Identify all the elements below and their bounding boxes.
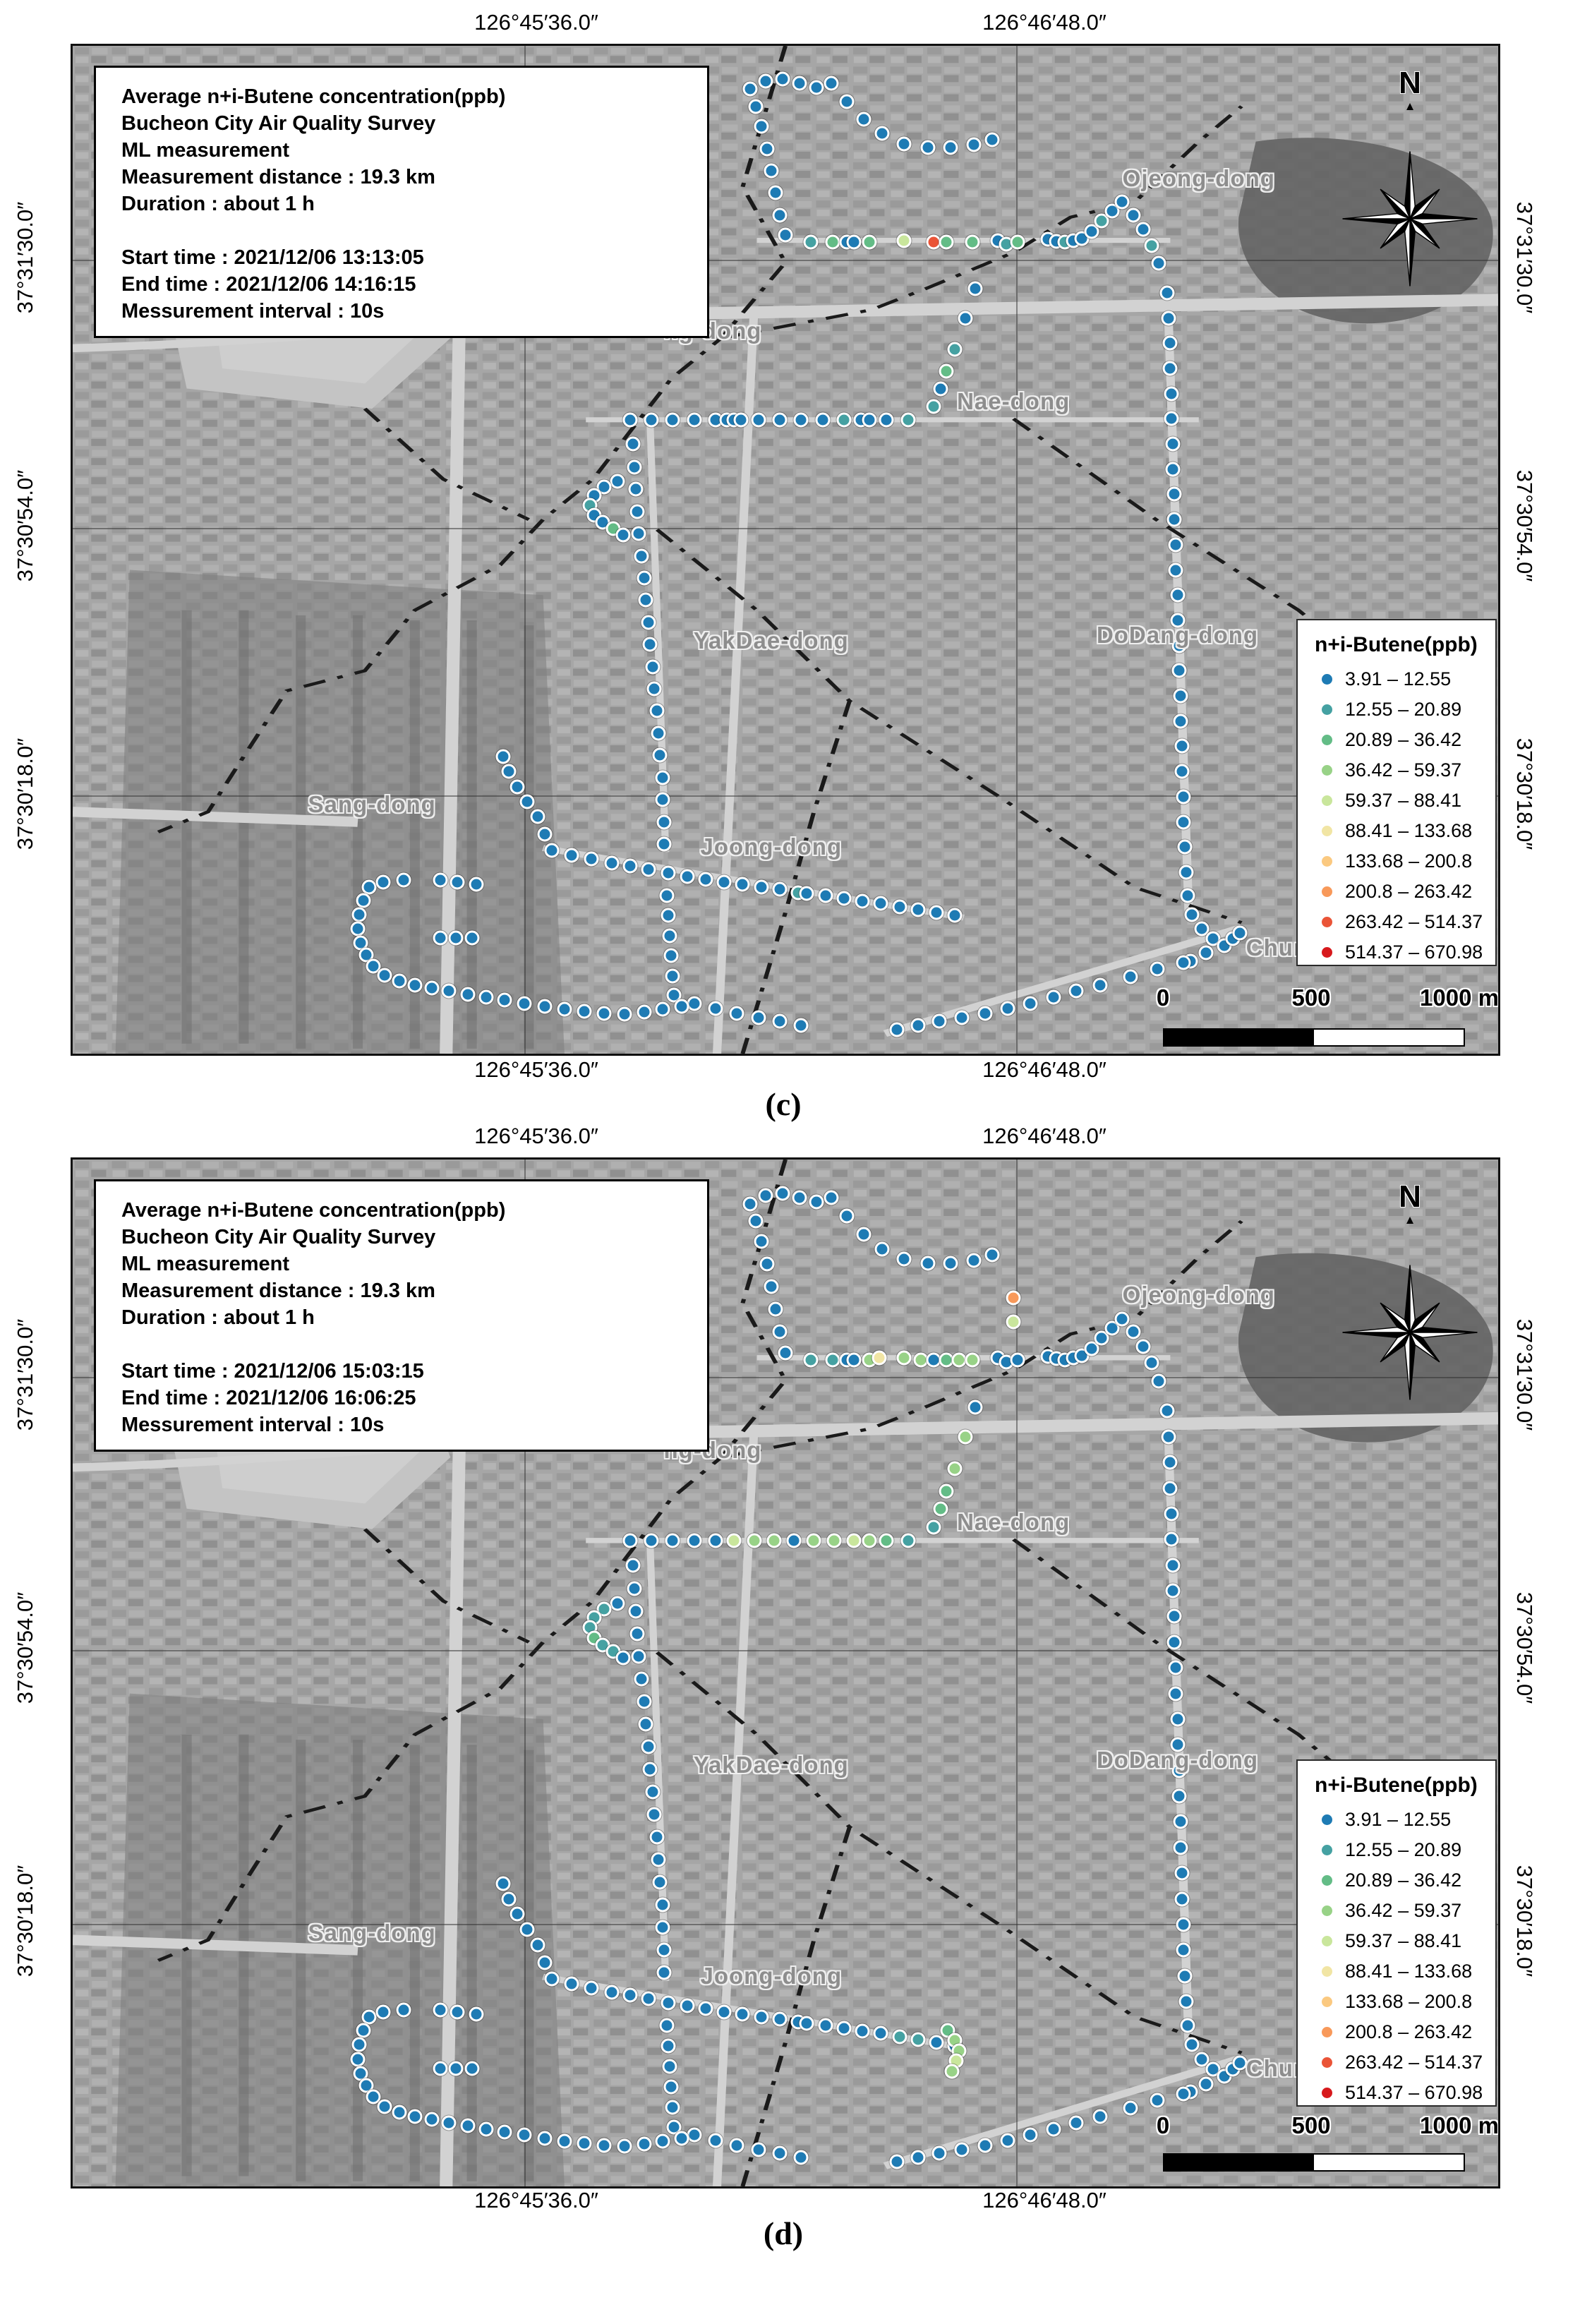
measurement-point (1233, 2056, 1248, 2071)
measurement-point (945, 2064, 960, 2079)
lat-label-left-1-c: 37°31′30.0″ (13, 202, 38, 313)
measurement-point (392, 2105, 406, 2120)
legend-row: 59.37 – 88.41 (1315, 1926, 1495, 1956)
measurement-point (464, 2061, 479, 2076)
measurement-point (1173, 714, 1188, 728)
legend-class-label: 88.41 – 133.68 (1345, 1961, 1472, 1982)
measurement-point (698, 2001, 713, 2016)
info-line: Measurement distance : 19.3 km (121, 164, 700, 191)
measurement-point (1046, 990, 1061, 1005)
info-line: Bucheon City Air Quality Survey (121, 110, 700, 137)
measurement-point (464, 930, 479, 945)
measurement-point (657, 1943, 672, 1958)
measurement-point (351, 2052, 366, 2066)
lon-label-bottom-right-d: 126°46′48.0″ (982, 2188, 1106, 2213)
legend-row: 200.8 – 263.42 (1315, 877, 1495, 907)
measurement-point (1198, 946, 1213, 961)
lat-label-left-3-d: 37°30′18.0″ (13, 1865, 38, 1977)
legend-row: 263.42 – 514.37 (1315, 2047, 1495, 2078)
measurement-point (450, 2004, 465, 2019)
measurement-point (610, 1596, 625, 1610)
measurement-point (362, 2009, 377, 2024)
measurement-point (927, 1519, 941, 1534)
measurement-point (661, 908, 676, 923)
district-label: Sang-dong (308, 791, 436, 818)
measurement-point (625, 1558, 640, 1572)
measurement-point (818, 888, 833, 903)
measurement-point (425, 2112, 440, 2127)
legend-class-label: 514.37 – 670.98 (1345, 2082, 1483, 2104)
measurement-point (644, 412, 659, 427)
measurement-point (1145, 238, 1159, 253)
measurement-point (855, 2024, 870, 2039)
info-line: ML measurement (121, 137, 700, 164)
gridline-vertical (1016, 1160, 1018, 2186)
measurement-point (1176, 956, 1190, 970)
measurement-point (544, 1972, 559, 1987)
measurement-point (1166, 1584, 1181, 1598)
scale-tick-0: 0 (1157, 985, 1169, 1011)
measurement-point (1178, 865, 1193, 879)
measurement-point (680, 1998, 694, 2013)
gridline-vertical (1016, 46, 1018, 1054)
measurement-point (622, 1533, 637, 1548)
legend-row: 263.42 – 514.37 (1315, 907, 1495, 937)
measurement-point (665, 1533, 680, 1548)
measurement-point (896, 136, 911, 151)
measurement-point (628, 482, 643, 497)
measurement-point (984, 1248, 999, 1263)
north-arrow: N ▲ (1336, 67, 1484, 296)
legend-box: n+i-Butene(ppb) 3.91 – 12.5512.55 – 20.8… (1296, 1759, 1497, 2107)
legend-class-label: 200.8 – 263.42 (1345, 881, 1472, 903)
measurement-point (660, 888, 675, 903)
figure-page: 126°45′36.0″ 126°46′48.0″ 37°31′30.0″ 37… (0, 0, 1580, 2324)
measurement-point (1198, 2076, 1213, 2091)
measurement-point (643, 1762, 658, 1777)
measurement-point (647, 682, 662, 697)
measurement-point (717, 2004, 732, 2019)
measurement-point (510, 779, 525, 794)
measurement-point (450, 875, 465, 890)
legend-class-label: 133.68 – 200.8 (1345, 1991, 1472, 2013)
measurement-point (1180, 888, 1195, 903)
legend-row: 514.37 – 670.98 (1315, 937, 1495, 968)
measurement-point (1011, 235, 1025, 250)
measurement-point (862, 412, 877, 427)
info-line: Bucheon City Air Quality Survey (121, 1224, 700, 1251)
legend-row: 88.41 – 133.68 (1315, 1956, 1495, 1987)
measurement-point (772, 1014, 787, 1029)
legend-class-label: 12.55 – 20.89 (1345, 699, 1461, 721)
legend-class-dot-icon (1322, 1905, 1332, 1916)
measurement-point (634, 548, 649, 563)
measurement-point (1160, 1404, 1175, 1419)
measurement-point (433, 930, 448, 945)
north-arrow: N ▲ (1336, 1181, 1484, 1410)
measurement-point (1001, 2133, 1015, 2148)
legend-class-label: 12.55 – 20.89 (1345, 1839, 1461, 1861)
lon-label-top-left-d: 126°45′36.0″ (474, 1124, 598, 1149)
measurement-point (758, 1188, 773, 1203)
measurement-point (544, 843, 559, 857)
measurement-point (631, 526, 646, 541)
measurement-point (629, 1627, 644, 1642)
measurement-point (537, 1955, 552, 1970)
measurement-point (643, 637, 658, 652)
measurement-point (356, 893, 371, 908)
measurement-point (664, 949, 679, 963)
measurement-point (1150, 2093, 1165, 2107)
measurement-point (687, 1533, 701, 1548)
measurement-point (641, 615, 656, 630)
district-label: DoDang-dong (1097, 622, 1258, 649)
measurement-point (772, 207, 787, 222)
measurement-point (1173, 1814, 1188, 1829)
measurement-point (754, 1234, 768, 1249)
map-panel-c: Ojeong-dongng-dongNae-dongYakDae-dongDoD… (71, 44, 1500, 1056)
north-arrow-icon: ▲ (1336, 1213, 1484, 1227)
measurement-point (910, 2032, 925, 2047)
measurement-point (1152, 256, 1166, 271)
measurement-point (772, 412, 787, 427)
lat-label-left-2-d: 37°30′54.0″ (13, 1592, 38, 1704)
measurement-point (768, 186, 783, 200)
measurement-point (1123, 970, 1138, 985)
lon-label-bottom-right-c: 126°46′48.0″ (982, 1057, 1106, 1083)
legend-row: 200.8 – 263.42 (1315, 2017, 1495, 2047)
measurement-point (855, 894, 870, 909)
measurement-point (800, 2016, 814, 2030)
district-label: YakDae-dong (694, 1752, 849, 1778)
measurement-point (900, 412, 915, 427)
measurement-point (656, 770, 670, 785)
measurement-point (1167, 487, 1182, 502)
measurement-point (896, 1350, 911, 1365)
measurement-point (1006, 1314, 1021, 1329)
legend-class-dot-icon (1322, 826, 1332, 836)
measurement-point (818, 2018, 833, 2033)
legend-class-dot-icon (1322, 2057, 1332, 2068)
measurement-point (577, 1004, 592, 1019)
measurement-point (717, 875, 732, 890)
measurement-point (1069, 984, 1084, 999)
measurement-point (622, 1988, 637, 2003)
measurement-point (657, 1965, 672, 1980)
info-line: Average n+i-Butene concentration(ppb) (121, 1197, 700, 1224)
measurement-point (1176, 1943, 1190, 1958)
gridline-horizontal (73, 1924, 1498, 1925)
measurement-point (442, 2115, 457, 2130)
measurement-point (674, 2131, 689, 2145)
legend-class-dot-icon (1322, 795, 1332, 806)
district-label: DoDang-dong (1097, 1747, 1258, 1774)
measurement-point (639, 1717, 653, 1732)
measurement-point (537, 2131, 552, 2145)
measurement-point (958, 1429, 972, 1444)
lon-label-top-left-c: 126°45′36.0″ (474, 10, 598, 35)
measurement-point (597, 2138, 612, 2153)
legend-class-dot-icon (1322, 2027, 1332, 2037)
measurement-point (653, 748, 668, 763)
map-panel-d: Ojeong-dongng-dongNae-dongYakDae-dongDoD… (71, 1157, 1500, 2188)
measurement-point (734, 412, 749, 427)
measurement-point (651, 1853, 666, 1867)
measurement-point (565, 1977, 579, 1992)
legend-row: 20.89 – 36.42 (1315, 725, 1495, 755)
measurement-point (1163, 1481, 1178, 1495)
measurement-point (656, 1920, 670, 1935)
measurement-point (1069, 2115, 1084, 2130)
measurement-point (1011, 1352, 1025, 1367)
measurement-point (1163, 1455, 1178, 1470)
measurement-point (824, 76, 838, 90)
info-line: Duration : about 1 h (121, 191, 700, 217)
gridline-horizontal (73, 1650, 1498, 1651)
measurement-point (425, 981, 440, 996)
measurement-point (1233, 925, 1248, 940)
measurement-point (1174, 764, 1189, 779)
measurement-point (1145, 1356, 1159, 1371)
measurement-point (661, 2038, 676, 2053)
lat-label-right-2-c: 37°30′54.0″ (1512, 470, 1537, 582)
measurement-point (772, 2011, 787, 2026)
lat-label-left-3-c: 37°30′18.0″ (13, 738, 38, 850)
legend-class-dot-icon (1322, 1966, 1332, 1977)
legend-row: 12.55 – 20.89 (1315, 1835, 1495, 1865)
measurement-point (1174, 1866, 1189, 1881)
measurement-point (615, 1650, 630, 1665)
measurement-point (1152, 1374, 1166, 1389)
measurement-point (900, 1533, 915, 1548)
measurement-point (502, 764, 517, 779)
measurement-point (751, 2142, 766, 2157)
info-line: Average n+i-Butene concentration(ppb) (121, 83, 700, 110)
legend-class-label: 20.89 – 36.42 (1345, 1870, 1461, 1891)
measurement-point (1023, 2128, 1038, 2143)
measurement-point (965, 235, 979, 250)
measurement-point (1126, 1325, 1140, 1339)
measurement-point (497, 2124, 512, 2139)
measurement-point (565, 848, 579, 862)
measurement-point (889, 1022, 904, 1037)
measurement-point (892, 899, 907, 914)
info-line: Measurement distance : 19.3 km (121, 1277, 700, 1304)
measurement-point (1136, 1339, 1151, 1354)
legend-class-label: 20.89 – 36.42 (1345, 729, 1461, 751)
legend-class-dot-icon (1322, 2088, 1332, 2098)
measurement-point (1167, 512, 1182, 527)
district-label: YakDae-dong (694, 627, 849, 654)
measurement-point (735, 877, 750, 892)
info-line: End time : 2021/12/06 14:16:15 (121, 271, 700, 298)
measurement-point (1006, 1291, 1021, 1306)
district-label: Joong-dong (700, 833, 842, 860)
measurement-point (1167, 1609, 1182, 1624)
measurement-point (879, 1533, 894, 1548)
measurement-point (794, 1018, 809, 1033)
legend-row: 3.91 – 12.55 (1315, 664, 1495, 694)
district-label: Nae-dong (957, 388, 1070, 415)
measurement-point (809, 1194, 824, 1209)
measurement-point (896, 1252, 911, 1267)
measurement-point (1174, 1891, 1189, 1906)
measurement-point (857, 1227, 872, 1242)
measurement-point (892, 2029, 907, 2044)
measurement-point (639, 593, 653, 608)
measurement-point (641, 862, 656, 877)
measurement-point (376, 2004, 391, 2019)
measurement-point (631, 1649, 646, 1664)
measurement-point (1177, 840, 1192, 855)
measurement-point (1180, 2018, 1195, 2033)
legend-row: 36.42 – 59.37 (1315, 755, 1495, 785)
measurement-point (967, 1399, 982, 1414)
measurement-point (807, 1533, 821, 1548)
measurement-point (836, 2021, 851, 2035)
measurement-point (1184, 2037, 1199, 2052)
measurement-point (775, 1186, 790, 1201)
measurement-point (665, 969, 680, 984)
measurement-point (478, 2121, 493, 2136)
measurement-point (392, 974, 406, 989)
measurement-point (939, 235, 954, 250)
measurement-point (708, 1001, 723, 1016)
measurement-point (775, 72, 790, 87)
measurement-point (794, 2150, 809, 2165)
panel-caption-c: (c) (71, 1085, 1496, 1123)
measurement-point (664, 2079, 679, 2094)
measurement-point (862, 1533, 877, 1548)
measurement-point (727, 1533, 742, 1548)
legend-class-label: 514.37 – 670.98 (1345, 941, 1483, 963)
measurement-point (839, 1209, 854, 1224)
measurement-point (1093, 2109, 1108, 2124)
measurement-point (1160, 285, 1175, 300)
legend-class-dot-icon (1322, 1845, 1332, 1855)
measurement-point (460, 987, 475, 1001)
legend-row: 20.89 – 36.42 (1315, 1865, 1495, 1896)
measurement-point (825, 235, 840, 250)
legend-row: 133.68 – 200.8 (1315, 1987, 1495, 2017)
legend-row: 514.37 – 670.98 (1315, 2078, 1495, 2108)
measurement-point (857, 112, 872, 127)
measurement-point (651, 726, 666, 740)
legend-class-dot-icon (1322, 1875, 1332, 1886)
measurement-point (948, 342, 963, 356)
measurement-point (687, 412, 701, 427)
survey-info-box: Average n+i-Butene concentration(ppb)Buc… (94, 1179, 709, 1452)
measurement-point (557, 1002, 572, 1017)
legend-class-dot-icon (1322, 704, 1332, 715)
measurement-point (687, 996, 701, 1011)
legend-title: n+i-Butene(ppb) (1315, 633, 1495, 657)
district-label: Nae-dong (957, 1509, 1070, 1536)
district-label: Joong-dong (700, 1963, 842, 1989)
measurement-point (660, 2018, 675, 2033)
measurement-point (1171, 663, 1186, 678)
measurement-point (460, 2119, 475, 2133)
measurement-point (751, 412, 766, 427)
measurement-point (625, 437, 640, 452)
compass-rose-icon (1336, 145, 1484, 293)
scale-bar-white-half (1314, 2155, 1464, 2170)
measurement-point (1164, 411, 1179, 426)
scale-bar (1163, 1028, 1465, 1047)
measurement-point (708, 1533, 723, 1548)
legend-title: n+i-Butene(ppb) (1315, 1774, 1495, 1798)
legend-class-dot-icon (1322, 1936, 1332, 1946)
measurement-point (934, 381, 948, 396)
legend-row: 12.55 – 20.89 (1315, 694, 1495, 725)
measurement-point (1173, 1840, 1188, 1855)
scale-bar-white-half (1314, 1030, 1464, 1045)
measurement-point (1176, 789, 1190, 804)
measurement-point (378, 2099, 392, 2114)
legend-class-dot-icon (1322, 1814, 1332, 1825)
measurement-point (530, 1938, 545, 1953)
measurement-point (478, 990, 493, 1005)
measurement-point (376, 875, 391, 890)
measurement-point (1169, 1661, 1183, 1675)
measurement-point (839, 94, 854, 109)
scale-tick-500: 500 (1291, 2112, 1330, 2139)
measurement-point (764, 164, 778, 179)
measurement-point (748, 1214, 763, 1229)
compass-rose-icon (1336, 1258, 1484, 1407)
measurement-point (1173, 689, 1188, 704)
measurement-point (517, 996, 532, 1011)
scale-tick-0: 0 (1157, 2112, 1169, 2139)
measurement-point (708, 2133, 723, 2148)
measurement-point (792, 76, 807, 90)
measurement-point (656, 793, 670, 807)
measurement-point (622, 412, 637, 427)
legend-class-dot-icon (1322, 1997, 1332, 2007)
measurement-point (826, 1533, 841, 1548)
measurement-point (396, 2002, 411, 2017)
measurement-point (874, 896, 888, 911)
measurement-point (597, 1006, 612, 1020)
measurement-point (934, 1501, 948, 1516)
measurement-point (889, 2155, 904, 2169)
legend-class-dot-icon (1322, 947, 1332, 958)
measurement-point (778, 1345, 793, 1360)
legend-row: 133.68 – 200.8 (1315, 846, 1495, 877)
measurement-point (356, 2023, 371, 2037)
lat-label-right-2-d: 37°30′54.0″ (1512, 1592, 1537, 1704)
measurement-point (647, 1807, 662, 1822)
measurement-point (929, 2035, 944, 2050)
measurement-point (862, 235, 877, 250)
measurement-point (1176, 2087, 1190, 2102)
measurement-point (929, 905, 944, 920)
measurement-point (1023, 996, 1038, 1011)
measurement-point (943, 140, 958, 155)
measurement-point (615, 527, 630, 542)
measurement-point (910, 1018, 925, 1033)
measurement-point (657, 814, 672, 829)
measurement-point (879, 412, 894, 427)
measurement-point (1163, 361, 1178, 375)
measurement-point (1170, 588, 1185, 603)
info-line (121, 217, 700, 244)
measurement-point (449, 930, 464, 945)
measurement-point (674, 999, 689, 1013)
legend-class-label: 263.42 – 514.37 (1345, 2052, 1483, 2073)
measurement-point (1123, 2101, 1138, 2116)
measurement-point (665, 412, 680, 427)
